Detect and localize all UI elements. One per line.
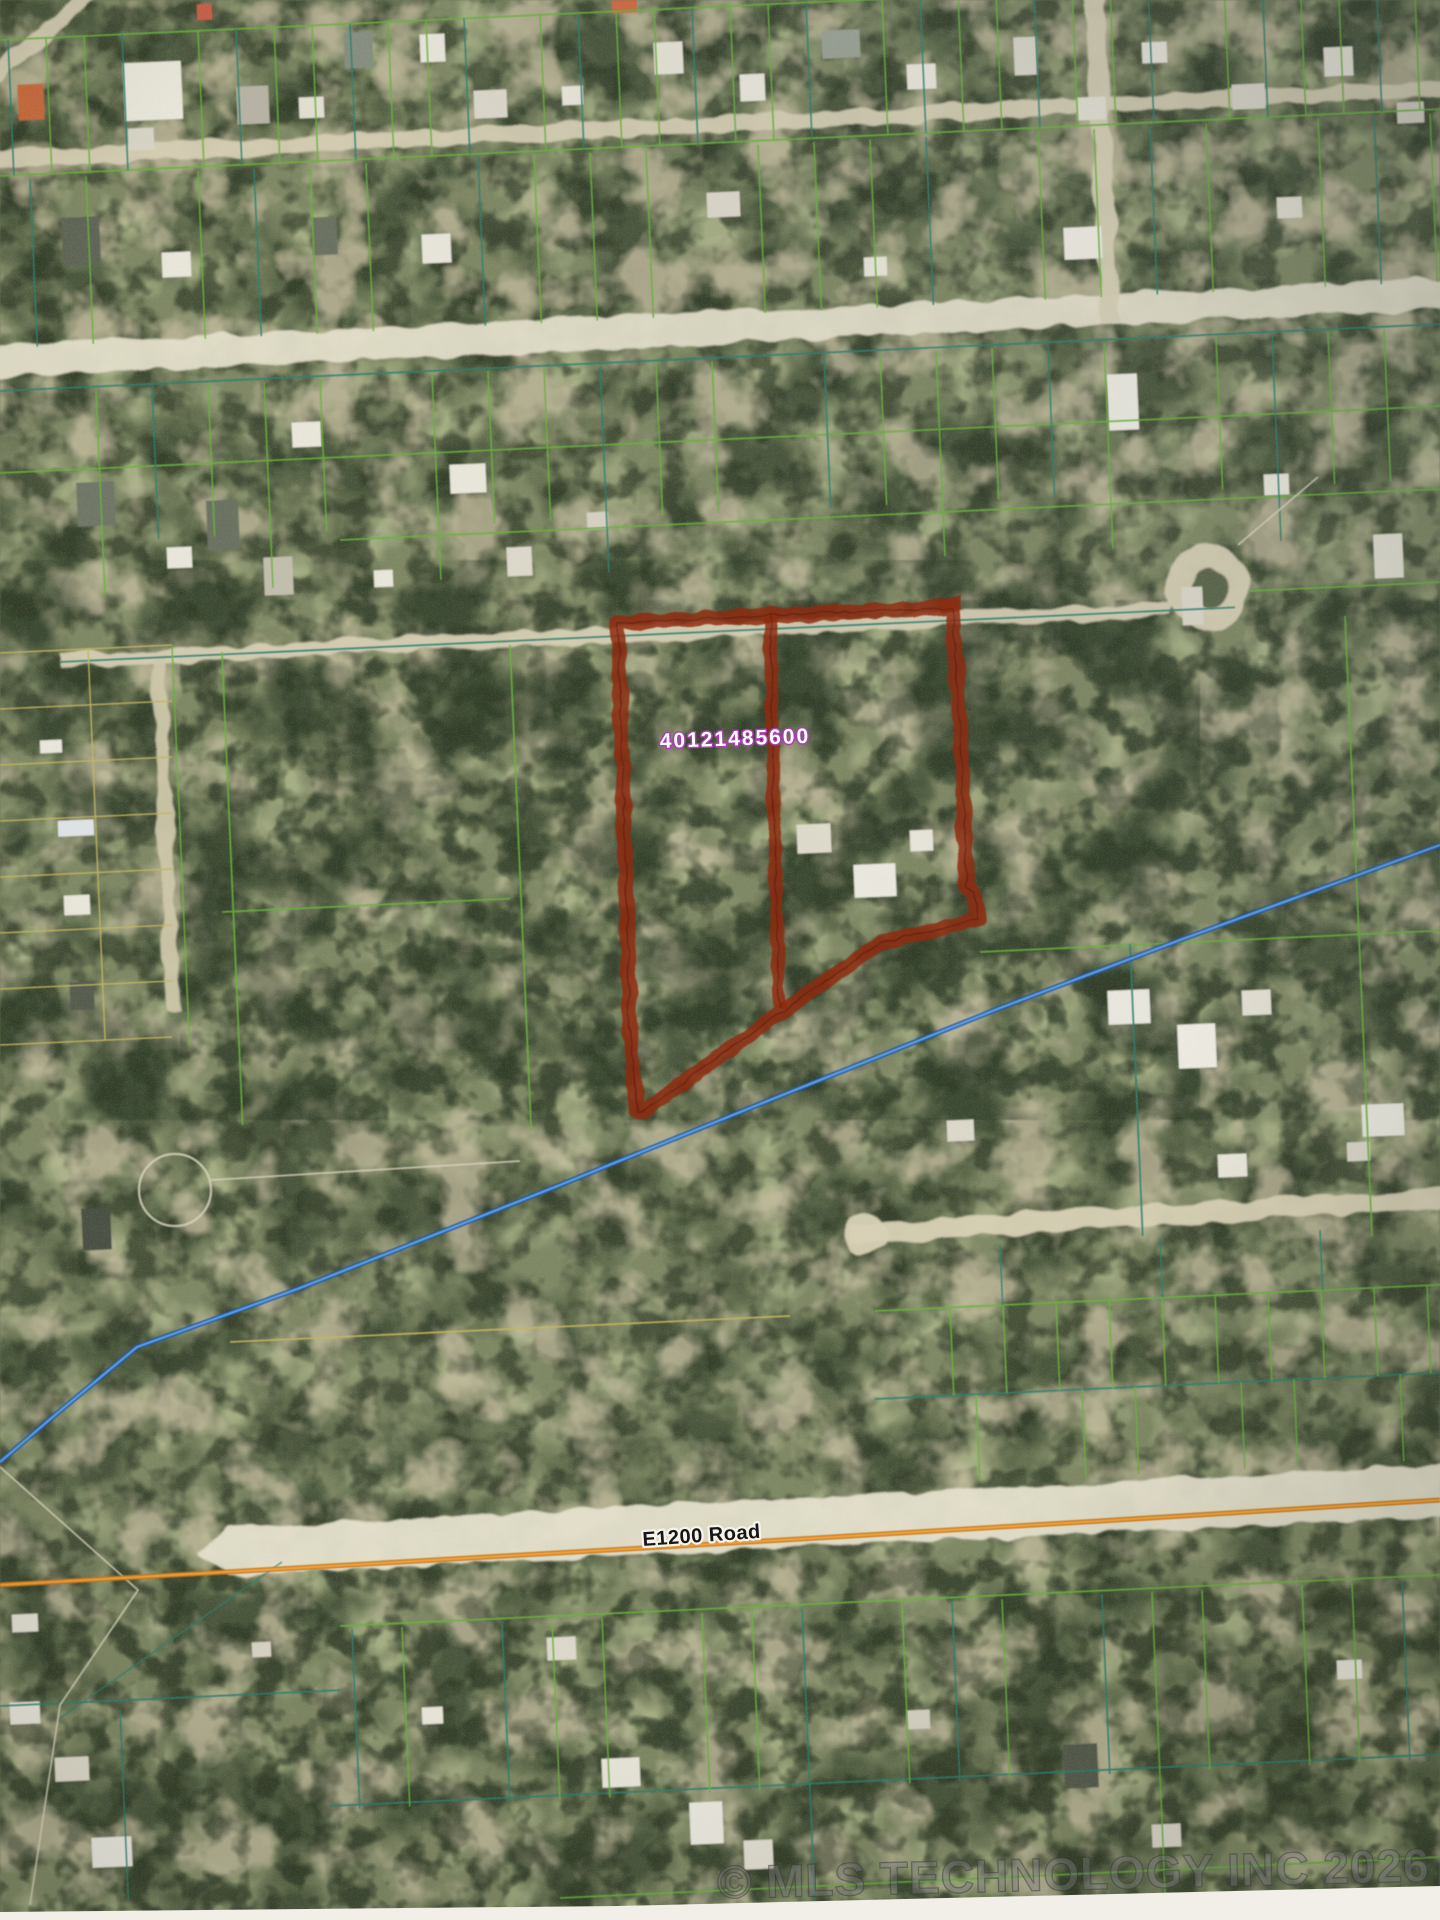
cool-cast xyxy=(0,0,1440,1920)
map-canvas: 40121485600 E1200 Road © MLS TECHNOLOGY … xyxy=(0,0,1440,1920)
aerial-parcel-map: 40121485600 E1200 Road © MLS TECHNOLOGY … xyxy=(0,0,1440,1920)
